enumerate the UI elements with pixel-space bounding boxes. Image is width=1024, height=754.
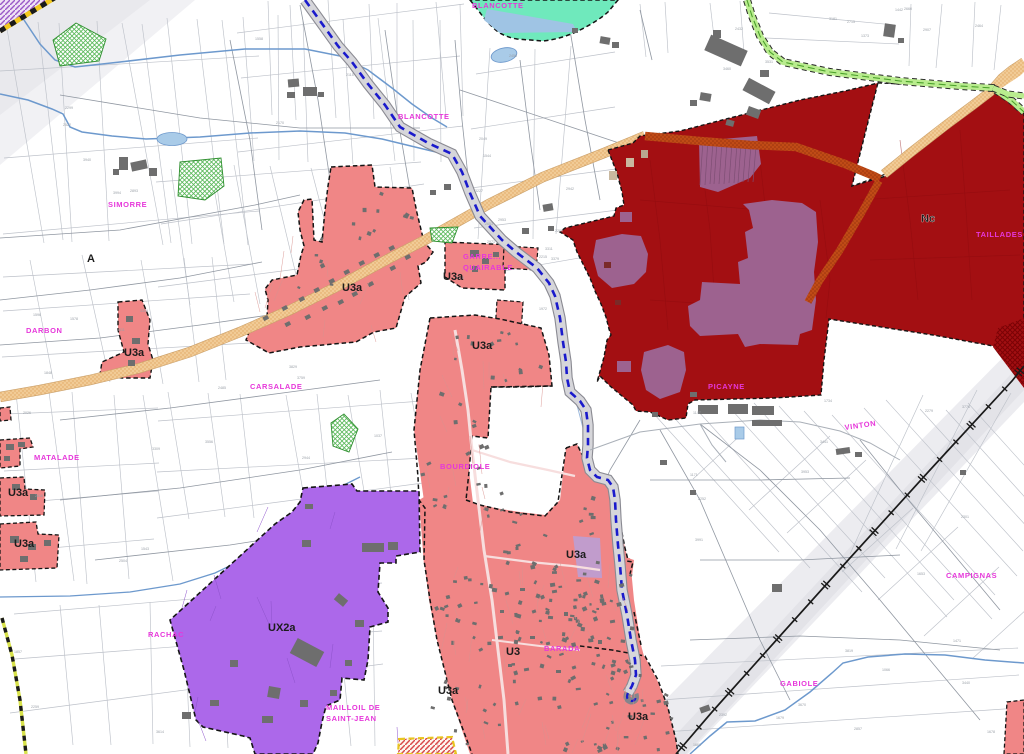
svg-text:2504: 2504 [119, 559, 127, 563]
svg-text:QUAIRABLE: QUAIRABLE [463, 263, 513, 272]
svg-text:RACHAC: RACHAC [148, 630, 184, 639]
svg-text:GARRE...: GARRE... [463, 252, 501, 261]
svg-text:U3a: U3a [14, 538, 35, 550]
svg-text:1678: 1678 [987, 730, 995, 734]
svg-text:U3a: U3a [342, 282, 363, 294]
svg-text:2432: 2432 [735, 27, 743, 31]
svg-text:3670: 3670 [798, 703, 806, 707]
svg-text:3379: 3379 [551, 257, 559, 261]
svg-text:3940: 3940 [83, 158, 91, 162]
svg-text:1848: 1848 [44, 371, 52, 375]
svg-text:2857: 2857 [854, 727, 862, 731]
svg-text:1558: 1558 [255, 37, 263, 41]
svg-text:2252: 2252 [698, 497, 706, 501]
svg-text:3181: 3181 [829, 17, 837, 21]
svg-text:2049: 2049 [479, 137, 487, 141]
svg-text:U3a: U3a [438, 685, 459, 697]
svg-text:3829: 3829 [289, 365, 297, 369]
svg-text:1543: 1543 [141, 547, 149, 551]
svg-text:PICAYNE: PICAYNE [708, 382, 745, 391]
svg-text:U3a: U3a [124, 347, 145, 359]
svg-text:U3a: U3a [628, 711, 649, 723]
svg-text:2816: 2816 [35, 494, 43, 498]
svg-text:3441: 3441 [820, 440, 828, 444]
svg-text:2522: 2522 [63, 123, 71, 127]
svg-text:TAILLADES: TAILLADES [976, 230, 1023, 239]
svg-text:3994: 3994 [113, 191, 121, 195]
svg-text:2660: 2660 [904, 7, 912, 11]
svg-text:2299: 2299 [65, 106, 73, 110]
svg-text:3311: 3311 [545, 247, 553, 251]
svg-text:2170: 2170 [276, 121, 284, 125]
svg-text:GABIOLE: GABIOLE [780, 679, 818, 688]
svg-text:BLANCOTTE: BLANCOTTE [398, 112, 450, 121]
svg-text:2485: 2485 [218, 386, 226, 390]
svg-text:1373: 1373 [861, 34, 869, 38]
svg-text:2301: 2301 [961, 515, 969, 519]
svg-text:1661: 1661 [693, 743, 701, 747]
svg-text:1471: 1471 [953, 639, 961, 643]
svg-text:2944: 2944 [302, 456, 310, 460]
svg-text:2907: 2907 [923, 28, 931, 32]
svg-text:3309: 3309 [140, 309, 148, 313]
svg-text:1578: 1578 [70, 317, 78, 321]
svg-text:2259: 2259 [31, 705, 39, 709]
svg-text:3556: 3556 [205, 440, 213, 444]
svg-text:2464: 2464 [975, 24, 983, 28]
svg-text:1679: 1679 [776, 716, 784, 720]
svg-text:2953: 2953 [498, 218, 506, 222]
svg-text:U3a: U3a [472, 340, 493, 352]
svg-text:DARBON: DARBON [26, 326, 63, 335]
svg-text:3227: 3227 [475, 189, 483, 193]
svg-text:2026: 2026 [23, 411, 31, 415]
svg-text:Nc: Nc [921, 213, 935, 225]
svg-text:1596: 1596 [33, 313, 41, 317]
svg-text:2971: 2971 [487, 240, 495, 244]
svg-text:1544: 1544 [483, 154, 491, 158]
svg-text:MAILLOIL DE: MAILLOIL DE [326, 703, 380, 712]
svg-text:CARSALADE: CARSALADE [250, 382, 302, 391]
svg-text:1653: 1653 [917, 572, 925, 576]
svg-text:U3a: U3a [8, 487, 29, 499]
svg-text:2942: 2942 [566, 187, 574, 191]
svg-text:1734: 1734 [824, 399, 832, 403]
svg-text:1037: 1037 [374, 434, 382, 438]
svg-text:A: A [87, 253, 95, 265]
svg-text:3309: 3309 [152, 447, 160, 451]
svg-text:BARADA: BARADA [544, 644, 580, 653]
svg-text:1442: 1442 [895, 8, 903, 12]
svg-text:BLANCOTTE: BLANCOTTE [472, 1, 524, 10]
svg-text:3440: 3440 [962, 681, 970, 685]
svg-text:3819: 3819 [845, 649, 853, 653]
svg-text:CAMPIGNAS: CAMPIGNAS [946, 571, 997, 580]
svg-text:1857: 1857 [14, 650, 22, 654]
svg-text:UX2a: UX2a [268, 622, 296, 634]
svg-text:U3: U3 [506, 646, 520, 658]
svg-text:3953: 3953 [801, 470, 809, 474]
svg-text:3614: 3614 [156, 730, 164, 734]
svg-text:SAINT-JEAN: SAINT-JEAN [326, 714, 377, 723]
svg-text:2715: 2715 [847, 20, 855, 24]
svg-text:3759: 3759 [297, 376, 305, 380]
svg-text:MATALADE: MATALADE [34, 453, 80, 462]
svg-text:2893: 2893 [130, 189, 138, 193]
svg-text:1972: 1972 [539, 307, 547, 311]
svg-text:2115: 2115 [346, 73, 354, 77]
svg-text:3776: 3776 [962, 405, 970, 409]
svg-text:U3a: U3a [566, 549, 587, 561]
svg-text:2209: 2209 [555, 229, 563, 233]
svg-text:1611: 1611 [117, 328, 125, 332]
svg-text:2392: 2392 [719, 713, 727, 717]
svg-text:1066: 1066 [882, 668, 890, 672]
svg-text:3531: 3531 [765, 60, 773, 64]
svg-text:U3a: U3a [443, 271, 464, 283]
svg-text:2279: 2279 [925, 409, 933, 413]
svg-text:1147: 1147 [693, 411, 701, 415]
svg-text:2215: 2215 [539, 255, 547, 259]
svg-text:2456: 2456 [509, 54, 517, 58]
svg-text:1171: 1171 [690, 473, 698, 477]
svg-text:BOURDIOLE: BOURDIOLE [440, 462, 490, 471]
svg-text:3991: 3991 [695, 538, 703, 542]
svg-text:3460: 3460 [723, 67, 731, 71]
svg-text:SIMORRE: SIMORRE [108, 200, 147, 209]
svg-text:2653: 2653 [485, 222, 493, 226]
